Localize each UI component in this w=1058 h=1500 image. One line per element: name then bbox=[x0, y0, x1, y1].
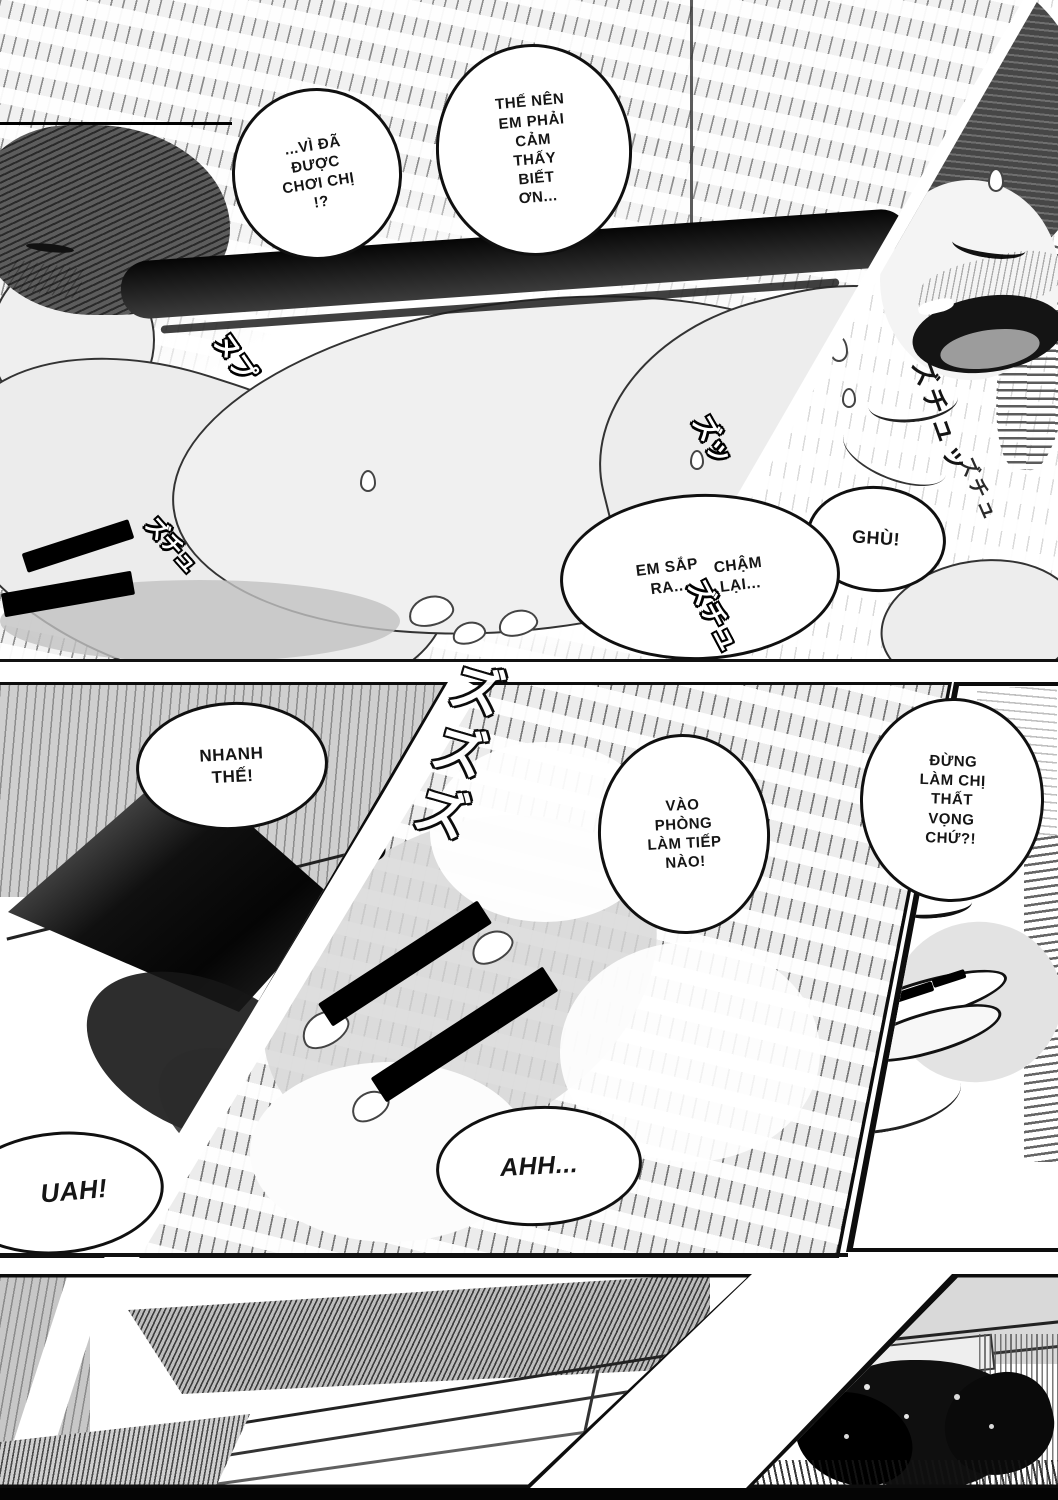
bubble-line: NÀO! bbox=[665, 852, 706, 873]
bubble-line: !? bbox=[313, 192, 331, 213]
bubble-line: LÀM CHỊ bbox=[919, 770, 986, 791]
sweat-drop bbox=[360, 470, 376, 492]
bush-highlight bbox=[864, 1384, 870, 1390]
bubble-line: ĐỪNG bbox=[929, 751, 977, 772]
page-bottom-bar bbox=[0, 1488, 1058, 1500]
panel-house-exterior bbox=[744, 1274, 1058, 1488]
bubble-line: AHH... bbox=[499, 1148, 579, 1184]
panel-house-exterior-content bbox=[744, 1274, 1058, 1488]
panel-row-middle: グチュ ピクッ NHANH THẾ! bbox=[0, 682, 1058, 1258]
sweat-drop bbox=[842, 388, 856, 408]
bubble-line: VỌNG bbox=[928, 809, 975, 830]
ceiling-beam-hatched bbox=[110, 1274, 710, 1394]
bush-highlight bbox=[904, 1414, 909, 1419]
grass-strip bbox=[744, 1460, 1058, 1486]
bubble-line: ƠN... bbox=[518, 187, 558, 209]
bush-highlight bbox=[954, 1394, 960, 1400]
panel-row-top: ズチュッ ズチュ ズプ ヌプ ズチュ ズッ ...VÌ ĐÃ ĐƯỢC CHƠI… bbox=[0, 0, 1058, 662]
bubble-line: VÀO bbox=[665, 795, 700, 816]
bubble-line: LÀM TIẾP bbox=[647, 832, 722, 855]
manga-page: ズチュッ ズチュ ズプ ヌプ ズチュ ズッ ...VÌ ĐÃ ĐƯỢC CHƠI… bbox=[0, 0, 1058, 1500]
panel-row-bottom bbox=[0, 1262, 1058, 1500]
panel-room-interior-content bbox=[0, 1274, 752, 1488]
bubble-line: THẾ! bbox=[211, 765, 254, 789]
bush-highlight bbox=[844, 1434, 849, 1439]
door-frame-vertical bbox=[574, 1370, 600, 1478]
panel-room-interior bbox=[0, 1274, 752, 1488]
panel-border bbox=[0, 1253, 848, 1257]
wall-corner-line bbox=[690, 0, 693, 250]
bubble-line: THẤT bbox=[931, 790, 974, 811]
bubble-line: GHÙ! bbox=[851, 526, 900, 552]
bubble-line: UAH! bbox=[39, 1172, 109, 1211]
bubble-line: CHỨ?! bbox=[925, 828, 976, 849]
bush-highlight bbox=[989, 1424, 994, 1429]
sweat-drop bbox=[988, 168, 1004, 192]
inset-panel-border bbox=[0, 122, 232, 125]
bubble-line: NHANH bbox=[199, 743, 264, 768]
